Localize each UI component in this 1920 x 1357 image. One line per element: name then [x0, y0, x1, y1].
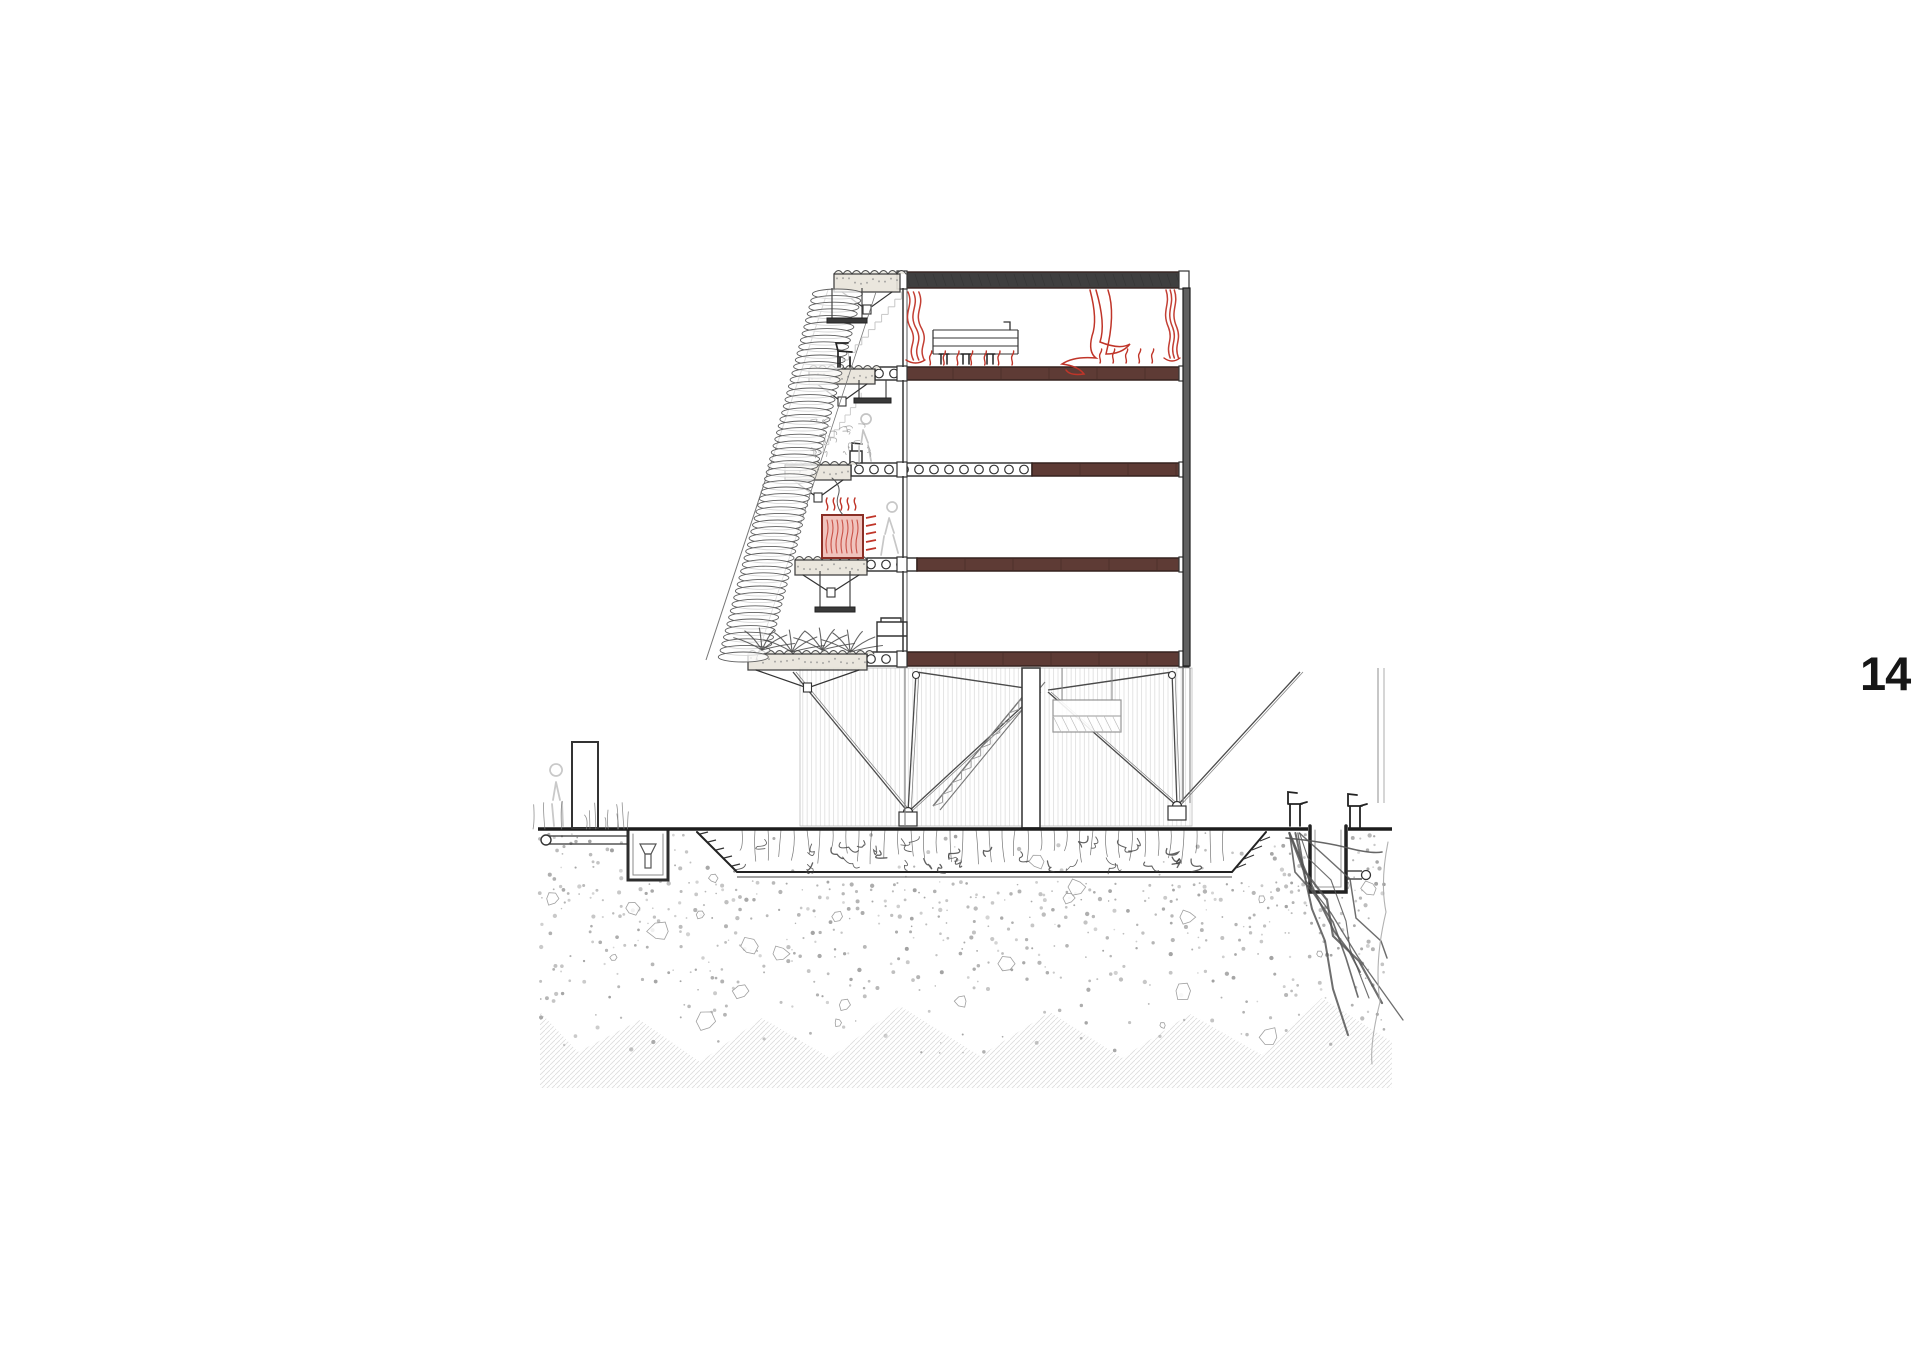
interiors	[906, 290, 1180, 375]
document-page: 14	[0, 0, 1920, 1357]
building-section-drawing	[0, 0, 1920, 1357]
page-number: 14	[1860, 646, 1910, 701]
